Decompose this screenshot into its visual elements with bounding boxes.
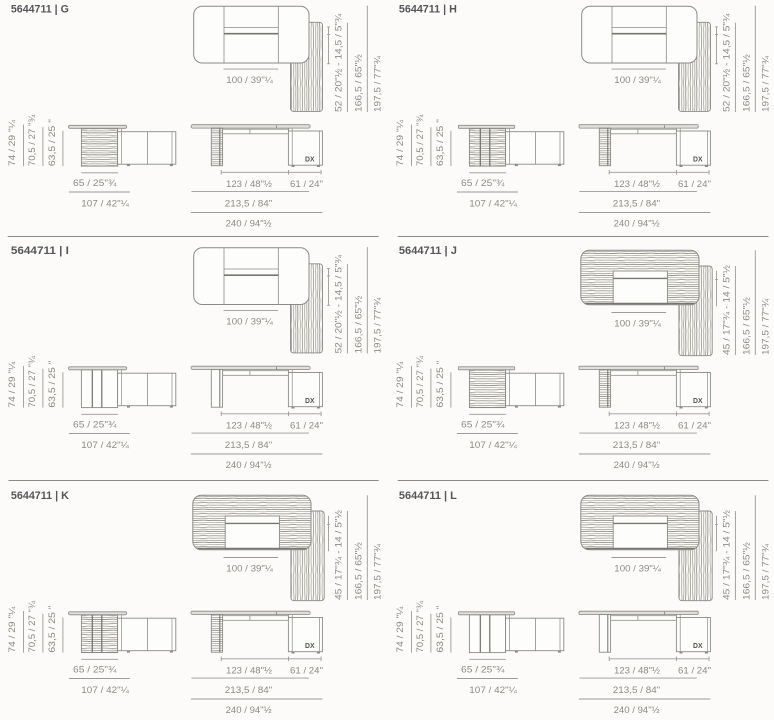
svg-text:5644711 | H: 5644711 | H <box>399 4 457 16</box>
svg-text:63,5 / 25 ": 63,5 / 25 " <box>435 119 446 166</box>
svg-text:240 / 94"½: 240 / 94"½ <box>226 218 272 229</box>
svg-text:45 / 17"¾ - 14 / 5"½: 45 / 17"¾ - 14 / 5"½ <box>722 510 733 600</box>
svg-text:63,5 / 25 ": 63,5 / 25 " <box>47 361 58 408</box>
svg-text:240 / 94"½: 240 / 94"½ <box>226 460 272 471</box>
svg-text:74 / 29 "¼: 74 / 29 "¼ <box>7 360 18 407</box>
svg-text:74 / 29 "¼: 74 / 29 "¼ <box>7 605 18 652</box>
svg-text:45 / 17"¾ - 14 / 5"½: 45 / 17"¾ - 14 / 5"½ <box>722 265 733 355</box>
svg-text:74 / 29 "¼: 74 / 29 "¼ <box>395 360 406 407</box>
svg-text:213,5 / 84": 213,5 / 84" <box>613 440 660 451</box>
svg-text:61 / 24": 61 / 24" <box>290 179 323 190</box>
svg-text:107 / 42"¼: 107 / 42"¼ <box>469 685 518 696</box>
svg-text:197,5 / 77"¾: 197,5 / 77"¾ <box>761 543 772 600</box>
svg-text:100 / 39"¼: 100 / 39"¼ <box>226 563 274 574</box>
svg-text:5644711 | K: 5644711 | K <box>11 490 69 502</box>
svg-text:DX: DX <box>305 155 315 164</box>
svg-text:123 / 48"½: 123 / 48"½ <box>226 179 272 190</box>
svg-text:70,5 / 27 "¾: 70,5 / 27 "¾ <box>415 355 426 408</box>
svg-text:65 / 25"¾: 65 / 25"¾ <box>461 178 506 189</box>
svg-text:DX: DX <box>693 641 703 650</box>
svg-text:63,5 / 25 ": 63,5 / 25 " <box>435 606 446 653</box>
svg-text:166,5 / 65"½: 166,5 / 65"½ <box>354 296 365 354</box>
svg-text:61 / 24": 61 / 24" <box>678 179 711 190</box>
svg-text:70,5 / 27 "¾: 70,5 / 27 "¾ <box>27 355 38 408</box>
svg-text:5644711 | J: 5644711 | J <box>399 245 457 257</box>
svg-text:240 / 94"½: 240 / 94"½ <box>614 218 660 229</box>
svg-text:100 / 39"¼: 100 / 39"¼ <box>614 563 662 574</box>
svg-text:74 / 29 "¼: 74 / 29 "¼ <box>395 119 406 166</box>
svg-text:5644711 | G: 5644711 | G <box>11 4 69 16</box>
svg-text:240 / 94"½: 240 / 94"½ <box>226 705 272 716</box>
svg-text:65 / 25"¾: 65 / 25"¾ <box>461 664 506 675</box>
svg-text:197,5 / 77"¾: 197,5 / 77"¾ <box>761 55 772 112</box>
svg-text:DX: DX <box>305 396 315 405</box>
svg-text:61 / 24": 61 / 24" <box>290 421 323 432</box>
svg-text:DX: DX <box>305 641 315 650</box>
svg-text:65 / 25"¾: 65 / 25"¾ <box>73 178 118 189</box>
svg-text:240 / 94"½: 240 / 94"½ <box>614 705 660 716</box>
svg-text:65 / 25"¾: 65 / 25"¾ <box>73 664 118 675</box>
svg-text:213,5 / 84": 213,5 / 84" <box>613 685 660 696</box>
svg-text:63,5 / 25 ": 63,5 / 25 " <box>435 361 446 408</box>
svg-text:123 / 48"½: 123 / 48"½ <box>226 666 272 677</box>
svg-text:5644711 | I: 5644711 | I <box>11 245 69 257</box>
svg-text:61 / 24": 61 / 24" <box>290 666 323 677</box>
svg-text:107 / 42"¼: 107 / 42"¼ <box>81 440 130 451</box>
svg-text:197,5 / 77"¾: 197,5 / 77"¾ <box>373 543 384 600</box>
svg-text:213,5 / 84": 213,5 / 84" <box>613 198 660 209</box>
svg-text:74 / 29 "¼: 74 / 29 "¼ <box>7 119 18 166</box>
svg-text:DX: DX <box>693 155 703 164</box>
svg-text:100 / 39"¼: 100 / 39"¼ <box>614 318 662 329</box>
svg-text:70,5 / 27 "¾: 70,5 / 27 "¾ <box>415 114 426 167</box>
svg-text:123 / 48"½: 123 / 48"½ <box>614 421 660 432</box>
svg-text:123 / 48"½: 123 / 48"½ <box>614 666 660 677</box>
svg-text:70,5 / 27 "¾: 70,5 / 27 "¾ <box>27 600 38 653</box>
svg-text:107 / 42"¼: 107 / 42"¼ <box>81 685 130 696</box>
svg-text:61 / 24": 61 / 24" <box>678 421 711 432</box>
svg-text:100 / 39"¼: 100 / 39"¼ <box>226 316 274 327</box>
svg-text:52 / 20"½ - 14,5 / 5"¾: 52 / 20"½ - 14,5 / 5"¾ <box>334 254 345 354</box>
svg-text:166,5 / 65"½: 166,5 / 65"½ <box>742 542 753 600</box>
svg-text:166,5 / 65"½: 166,5 / 65"½ <box>354 54 365 112</box>
svg-text:166,5 / 65"½: 166,5 / 65"½ <box>354 542 365 600</box>
svg-text:107 / 42"¼: 107 / 42"¼ <box>469 198 518 209</box>
svg-text:70,5 / 27 "¾: 70,5 / 27 "¾ <box>415 600 426 653</box>
svg-text:74 / 29 "¼: 74 / 29 "¼ <box>395 605 406 652</box>
svg-text:63,5 / 25 ": 63,5 / 25 " <box>47 119 58 166</box>
svg-text:107 / 42"¼: 107 / 42"¼ <box>81 198 130 209</box>
svg-text:166,5 / 65"½: 166,5 / 65"½ <box>742 54 753 112</box>
svg-text:100 / 39"¼: 100 / 39"¼ <box>614 75 662 86</box>
svg-text:70,5 / 27 "¾: 70,5 / 27 "¾ <box>27 114 38 167</box>
svg-text:213,5 / 84": 213,5 / 84" <box>225 198 272 209</box>
svg-text:213,5 / 84": 213,5 / 84" <box>225 440 272 451</box>
svg-text:123 / 48"½: 123 / 48"½ <box>614 179 660 190</box>
svg-text:DX: DX <box>693 396 703 405</box>
svg-text:45 / 17"¾ - 14 / 5"½: 45 / 17"¾ - 14 / 5"½ <box>334 510 345 600</box>
svg-text:197,5 / 77"¾: 197,5 / 77"¾ <box>373 55 384 112</box>
svg-text:5644711 | L: 5644711 | L <box>399 490 457 502</box>
svg-text:52 / 20"½ - 14,5 / 5"¾: 52 / 20"½ - 14,5 / 5"¾ <box>722 12 733 112</box>
svg-text:123 / 48"½: 123 / 48"½ <box>226 421 272 432</box>
svg-text:65 / 25"¾: 65 / 25"¾ <box>73 419 118 430</box>
svg-text:65 / 25"¾: 65 / 25"¾ <box>461 419 506 430</box>
svg-text:197,5 / 77"¾: 197,5 / 77"¾ <box>761 298 772 355</box>
svg-text:197,5 / 77"¾: 197,5 / 77"¾ <box>373 296 384 353</box>
svg-text:63,5 / 25 ": 63,5 / 25 " <box>47 606 58 653</box>
svg-text:166,5 / 65"½: 166,5 / 65"½ <box>742 297 753 355</box>
svg-text:240 / 94"½: 240 / 94"½ <box>614 460 660 471</box>
svg-text:100 / 39"¼: 100 / 39"¼ <box>226 75 274 86</box>
svg-text:107 / 42"¼: 107 / 42"¼ <box>469 440 518 451</box>
svg-text:213,5 / 84": 213,5 / 84" <box>225 685 272 696</box>
svg-text:52 / 20"½ - 14,5 / 5"¾: 52 / 20"½ - 14,5 / 5"¾ <box>334 12 345 112</box>
svg-text:61 / 24": 61 / 24" <box>678 666 711 677</box>
